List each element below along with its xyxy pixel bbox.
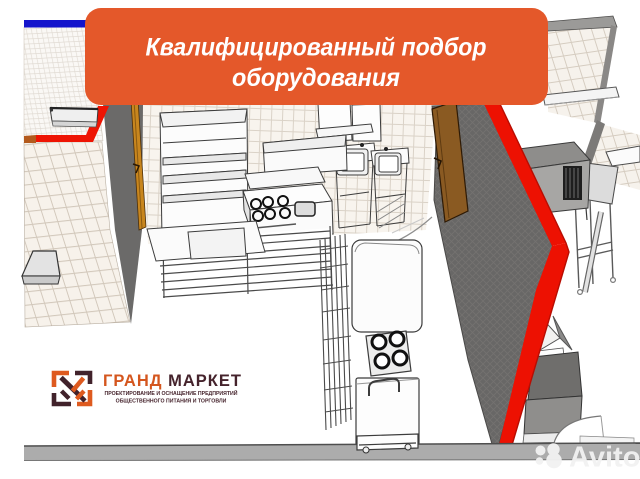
svg-text:оборудования: оборудования	[232, 64, 400, 92]
svg-text:Квалифицированный подбор: Квалифицированный подбор	[146, 34, 487, 62]
svg-text:Avito: Avito	[569, 442, 640, 474]
svg-text:ПРОЕКТИРОВАНИЕ И ОСНАЩЕНИЕ ПРЕ: ПРОЕКТИРОВАНИЕ И ОСНАЩЕНИЕ ПРЕДПРИЯТИЙ	[104, 389, 237, 397]
svg-text:ГРАНД МАРКЕТ: ГРАНД МАРКЕТ	[103, 372, 242, 390]
svg-text:ОБЩЕСТВЕННОГО ПИТАНИЯ И ТОРГОВ: ОБЩЕСТВЕННОГО ПИТАНИЯ И ТОРГОВЛИ	[116, 399, 227, 405]
